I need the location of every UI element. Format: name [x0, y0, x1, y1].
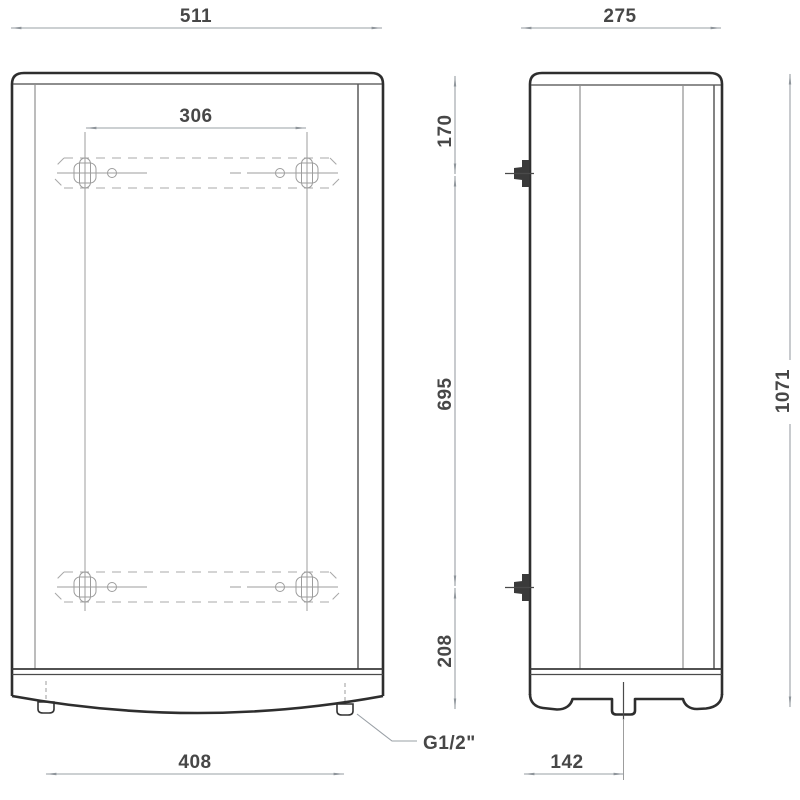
dim-overall-width-label: 511: [180, 6, 212, 27]
dim-vertical-chain: 170 695 208: [435, 76, 456, 709]
dim-pipe-spacing-label: 408: [178, 752, 211, 773]
right-pipe-connection: [337, 704, 353, 715]
upper-mounting-bracket: [55, 158, 339, 188]
dim-pipe-offset: 142: [524, 719, 624, 780]
lower-mounting-bracket: [55, 572, 339, 602]
dim-pipe-offset-label: 142: [550, 752, 583, 773]
drawing-canvas: 511 275 306 170 695 208 1071: [0, 0, 800, 800]
technical-drawing-svg: 511 275 306 170 695 208 1071: [0, 0, 800, 800]
side-body-outline: [530, 73, 722, 695]
front-view: [12, 73, 383, 715]
dim-bottom-offset-label: 208: [435, 634, 456, 667]
dim-bracket-spacing-label: 306: [179, 106, 212, 127]
dim-overall-depth-label: 275: [603, 6, 636, 27]
front-body-outline: [12, 73, 383, 696]
dim-overall-width: 511: [11, 6, 382, 28]
dim-overall-height-label: 1071: [773, 369, 794, 413]
side-view: [505, 73, 722, 720]
side-bottom-cap: [530, 694, 722, 715]
dim-bracket-spacing: 306: [86, 106, 306, 128]
dim-overall-depth: 275: [521, 6, 721, 28]
thread-callout-label: G1/2": [423, 733, 476, 754]
dim-pipe-spacing: 408: [46, 752, 344, 774]
dim-mid-offset-label: 695: [435, 377, 456, 410]
thread-callout: G1/2": [357, 714, 476, 754]
dimensions: 511 275 306 170 695 208 1071: [11, 6, 794, 780]
dim-top-offset-label: 170: [435, 114, 456, 147]
dim-overall-height: 1071: [773, 74, 794, 707]
front-bottom-arc: [12, 696, 383, 713]
thread-leader-line: [357, 714, 417, 741]
